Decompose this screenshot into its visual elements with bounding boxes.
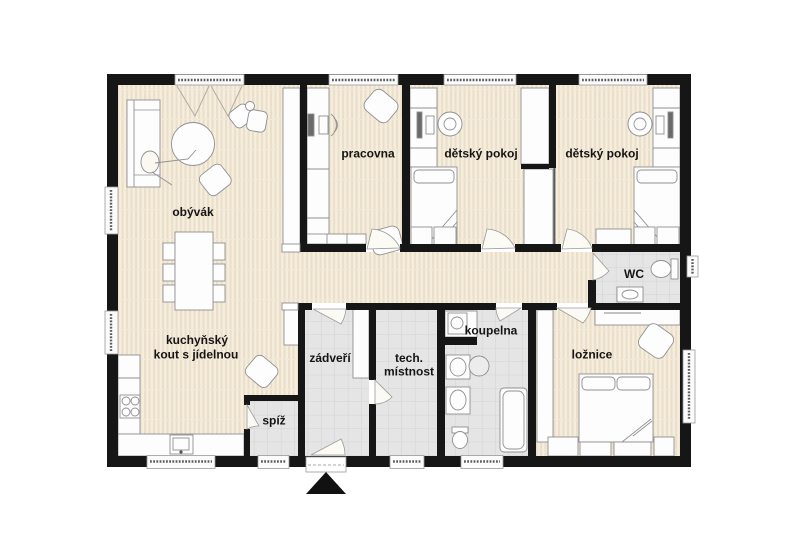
svg-text:místnost: místnost — [384, 365, 434, 379]
svg-text:spíž: spíž — [262, 414, 285, 428]
svg-text:tech.: tech. — [395, 351, 423, 365]
svg-text:zádveří: zádveří — [309, 351, 351, 365]
svg-text:dětský pokoj: dětský pokoj — [565, 147, 638, 161]
svg-text:WC: WC — [624, 267, 644, 281]
svg-text:koupelna: koupelna — [465, 324, 518, 338]
svg-text:pracovna: pracovna — [341, 147, 395, 161]
svg-text:kout s jídelnou: kout s jídelnou — [154, 348, 239, 362]
svg-text:obývák: obývák — [172, 205, 214, 219]
svg-text:kuchyňský: kuchyňský — [166, 333, 228, 347]
svg-text:dětský pokoj: dětský pokoj — [444, 147, 517, 161]
svg-text:ložnice: ložnice — [572, 348, 613, 362]
